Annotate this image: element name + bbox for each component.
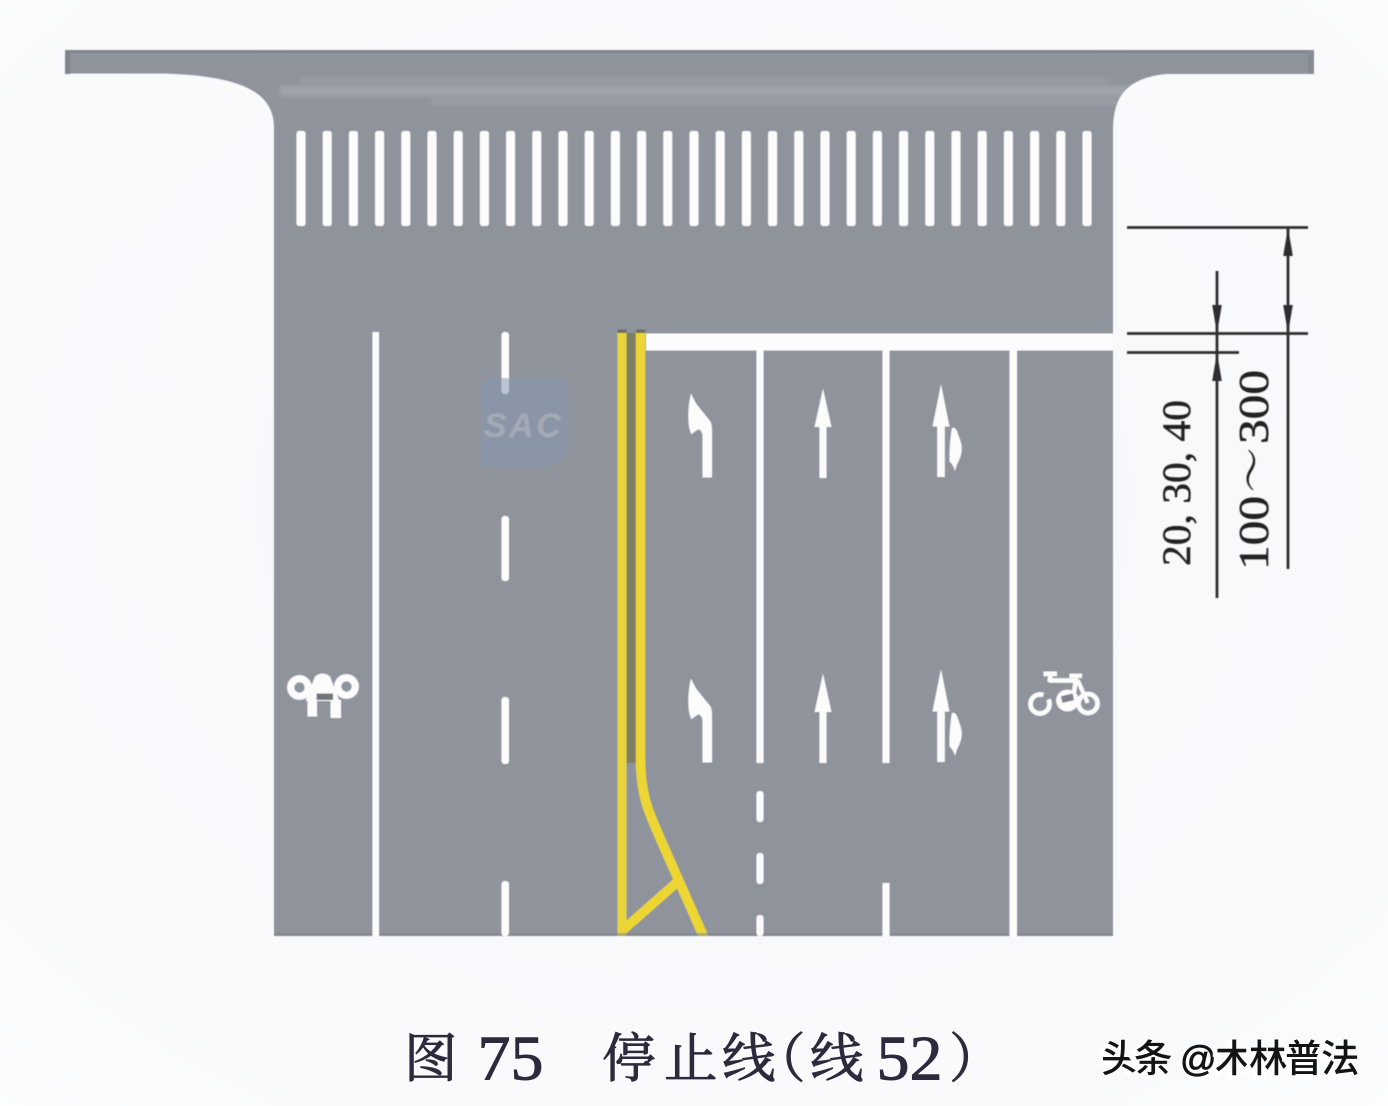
- svg-text:@: @: [1180, 1038, 1217, 1079]
- svg-text:52: 52: [877, 1024, 943, 1094]
- svg-text:300: 300: [1232, 370, 1278, 444]
- svg-text:100: 100: [1232, 496, 1278, 570]
- svg-text:75: 75: [478, 1024, 544, 1094]
- svg-text:SAC: SAC: [484, 407, 563, 445]
- svg-text:20, 30, 40: 20, 30, 40: [1154, 400, 1199, 566]
